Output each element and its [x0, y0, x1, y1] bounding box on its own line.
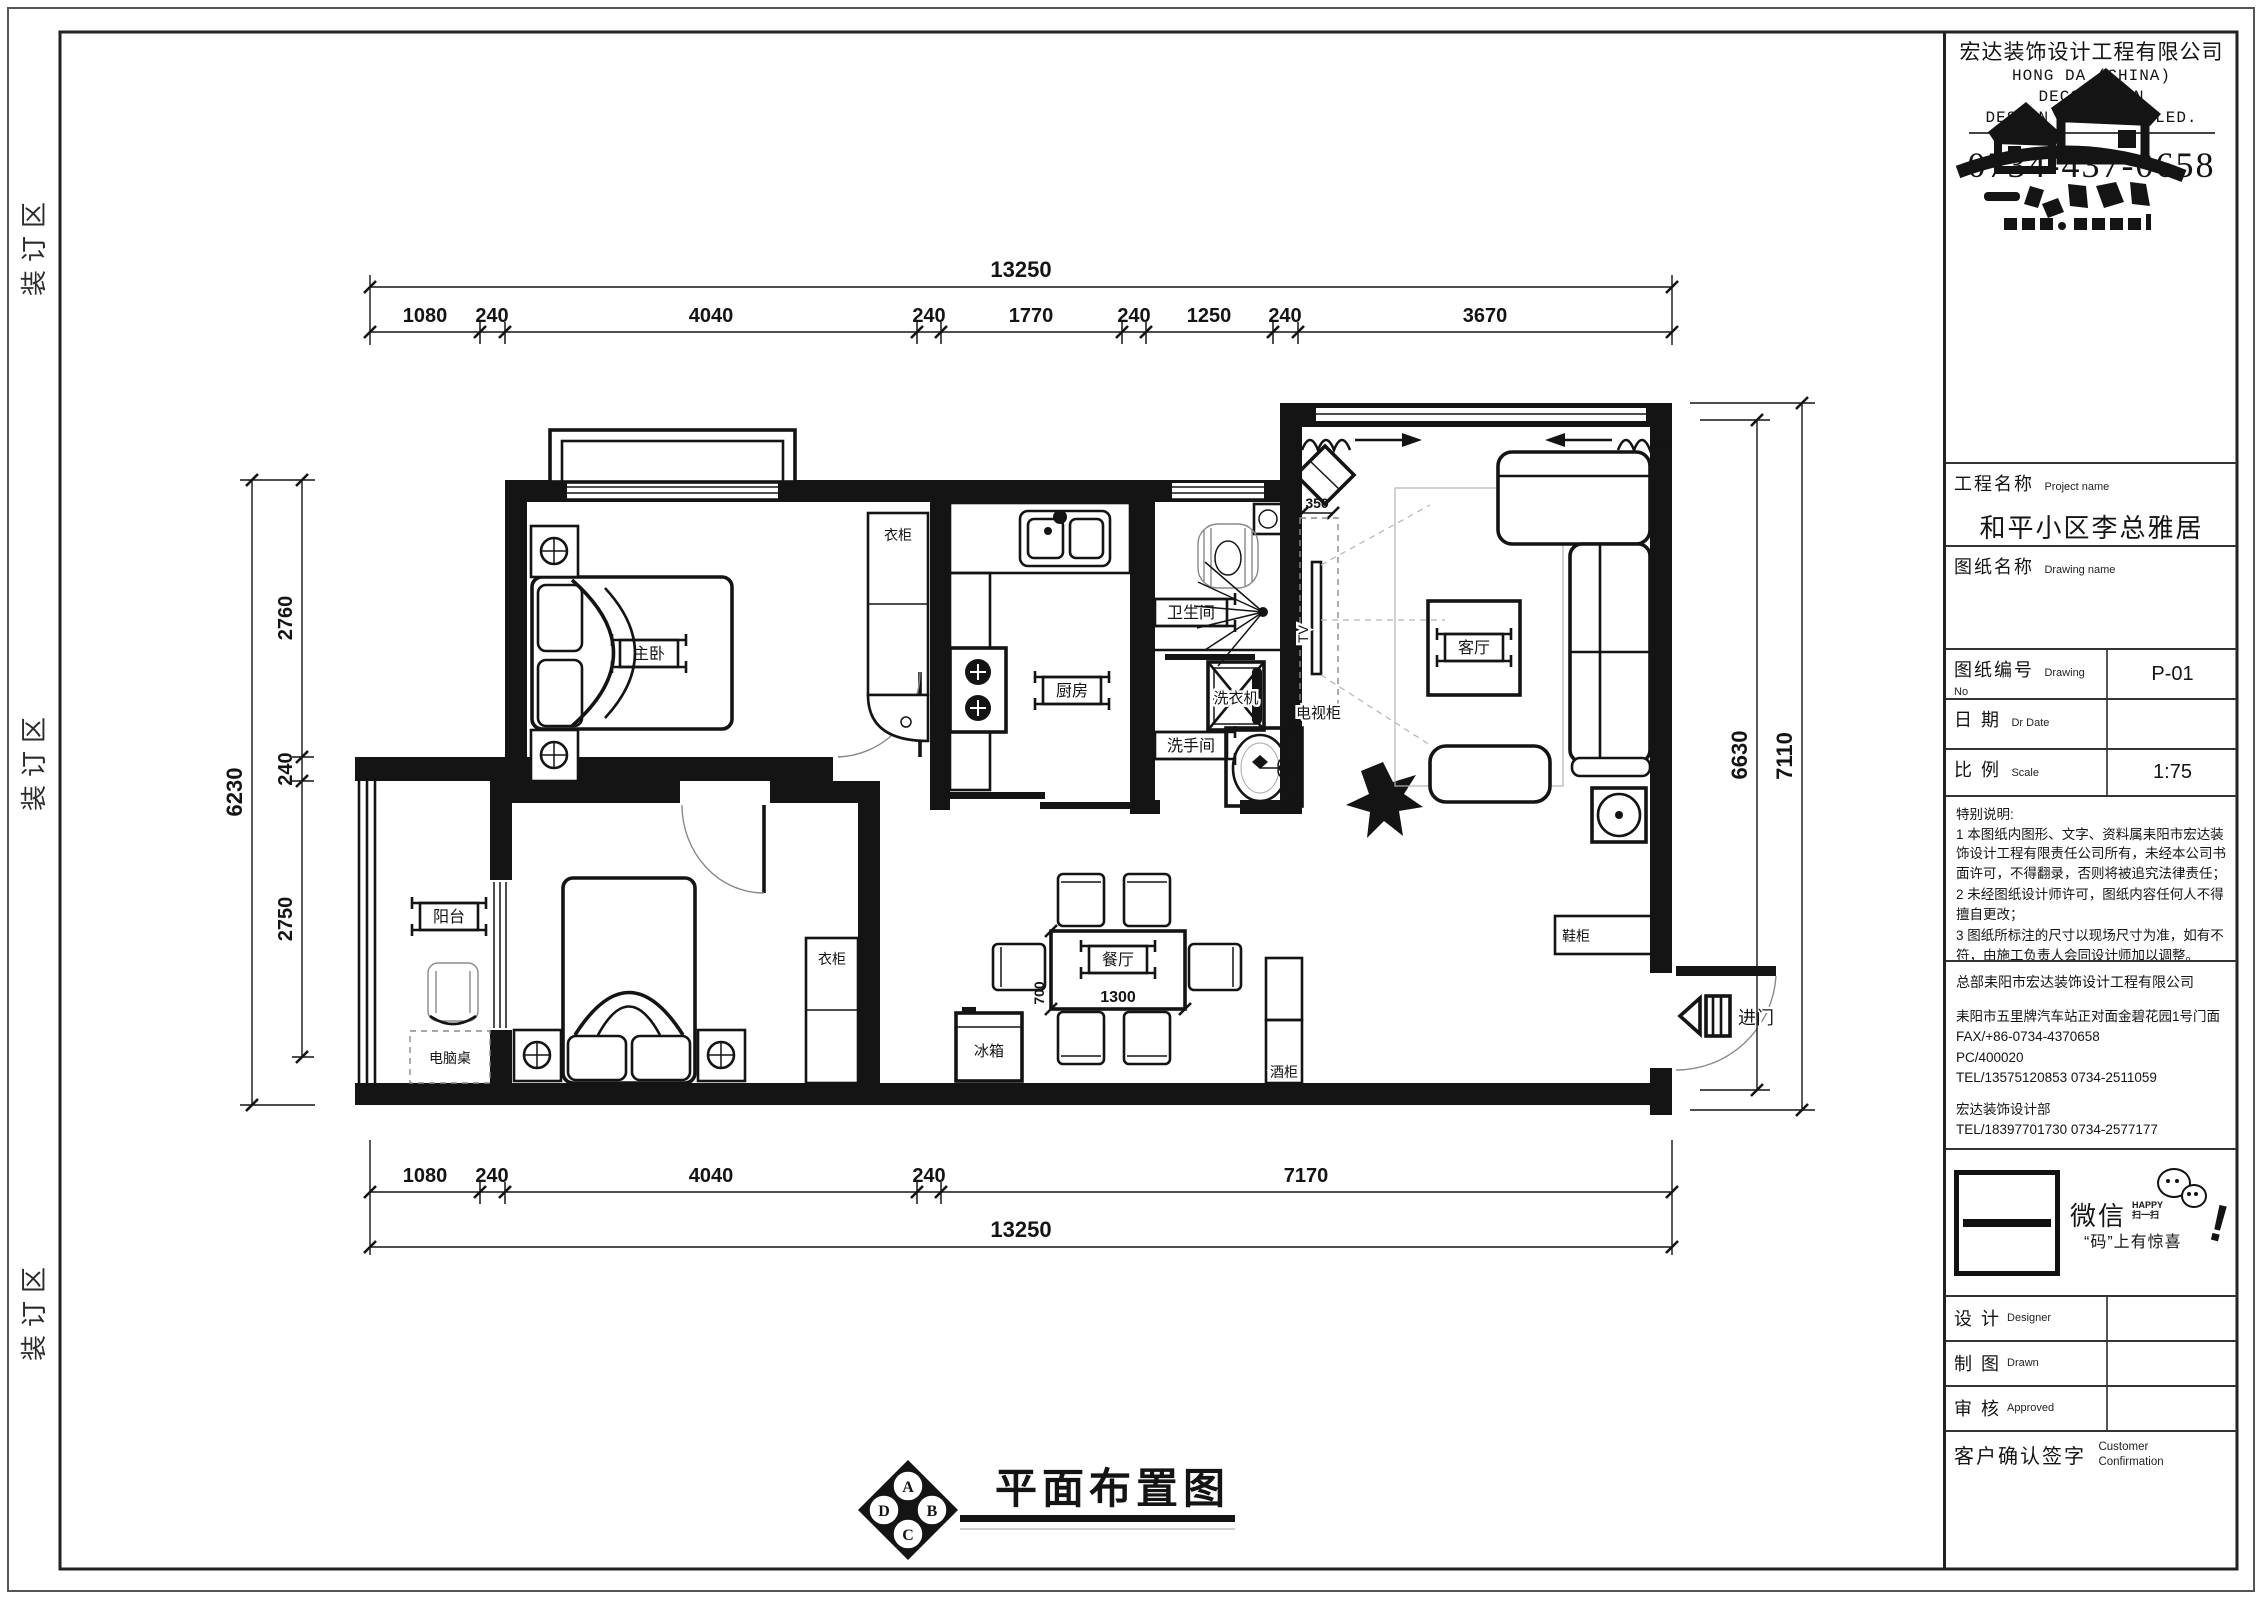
kitchen: 厨房 — [950, 503, 1130, 790]
dim-1300: 1300 — [1100, 989, 1136, 1006]
svg-text:A: A — [902, 1479, 914, 1496]
svg-text:洗手间: 洗手间 — [1167, 737, 1215, 755]
svg-text:2760: 2760 — [275, 596, 297, 641]
binding-area-label: 装订区 — [14, 680, 54, 840]
svg-text:C: C — [902, 1527, 914, 1544]
wechat-block: 微信 HAPPY扫一扫 “码”上有惊喜 ! — [1946, 1148, 2237, 1295]
title-block: 宏达装饰设计工程有限公司 HONG DA (CHINA) DECORATION … — [1943, 32, 2237, 1569]
svg-text:4040: 4040 — [689, 1165, 734, 1187]
dining: 餐厅 700 1300 冰箱 酒柜 — [956, 874, 1302, 1083]
svg-text:240: 240 — [912, 305, 945, 327]
svg-text:卫生间: 卫生间 — [1167, 604, 1215, 622]
drawn-row: 制 图 Drawn — [1946, 1340, 2237, 1385]
dim-700: 700 — [1031, 981, 1047, 1005]
room-label-bathroom: 卫生间 — [1147, 593, 1235, 632]
svg-text:厨房: 厨房 — [1056, 682, 1088, 700]
svg-text:240: 240 — [912, 1165, 945, 1187]
svg-text:餐厅: 餐厅 — [1102, 951, 1134, 969]
wine-cabinet-label: 酒柜 — [1270, 1064, 1298, 1080]
address-block: 总部耒阳市宏达装饰设计工程有限公司 耒阳市五里牌汽车站正对面金碧花园1号门面 F… — [1946, 960, 2237, 1148]
shoe-cabinet-label: 鞋柜 — [1562, 928, 1590, 944]
washer-label: 洗衣机 — [1213, 690, 1258, 707]
svg-text:13250: 13250 — [990, 1217, 1051, 1242]
bathroom: 卫生间 洗衣机 洗手间 — [1147, 504, 1302, 809]
svg-text:B: B — [927, 1503, 938, 1520]
room-label-dining: 餐厅 — [1081, 940, 1155, 979]
scale-value: 1:75 — [2106, 750, 2237, 795]
company-logo — [1946, 46, 2196, 246]
plan-title: 平面布置图 — [960, 1465, 1235, 1529]
project-name-row: 工程名称 Project name 和平小区李总雅居 — [1946, 462, 2237, 545]
drawn-signature-cell — [2106, 1342, 2237, 1385]
entry-label: 进门 — [1738, 1008, 1774, 1028]
svg-text:1250: 1250 — [1187, 305, 1232, 327]
approved-row: 审 核 Approved — [1946, 1385, 2237, 1430]
drawing-no-value: P-01 — [2106, 650, 2237, 698]
fridge-label: 冰箱 — [974, 1043, 1004, 1060]
plant — [1346, 762, 1423, 838]
svg-text:平面布置图: 平面布置图 — [995, 1465, 1230, 1512]
svg-text:240: 240 — [475, 305, 508, 327]
room-label-kitchen: 厨房 — [1035, 671, 1109, 710]
svg-text:1770: 1770 — [1009, 305, 1054, 327]
room-label-balcony: 阳台 — [412, 897, 486, 936]
customer-confirmation-row: 客户确认签字 Customer Confirmation — [1946, 1430, 2237, 1569]
binding-area-label: 装订区 — [14, 1230, 54, 1390]
svg-text:240: 240 — [475, 1165, 508, 1187]
svg-text:2750: 2750 — [275, 897, 297, 942]
svg-text:240: 240 — [1268, 305, 1301, 327]
wine-cabinet — [1266, 958, 1302, 1020]
svg-text:13250: 13250 — [990, 257, 1051, 282]
sofa-top — [1498, 452, 1650, 544]
tv-cabinet-label: 电视柜 — [1296, 705, 1341, 722]
entry-arrow-icon — [1680, 998, 1700, 1034]
compass: A B C D — [858, 1460, 958, 1560]
svg-text:阳台: 阳台 — [433, 908, 465, 926]
desk-label: 电脑桌 — [429, 1050, 471, 1066]
svg-text:D: D — [878, 1503, 890, 1520]
binding-area-label: 装订区 — [14, 165, 54, 325]
bedroom2: 衣柜 — [514, 878, 858, 1083]
designer-signature-cell — [2106, 1297, 2237, 1340]
company-header: 宏达装饰设计工程有限公司 HONG DA (CHINA) DECORATION … — [1946, 32, 2237, 462]
designer-row: 设 计 Designer — [1946, 1295, 2237, 1340]
project-name-value: 和平小区李总雅居 — [1946, 508, 2237, 545]
living-room: 350 TV 电视柜 客厅 — [1295, 433, 1666, 842]
qr-code — [1954, 1170, 2060, 1276]
master-bedroom: 主卧 衣柜 — [531, 513, 928, 781]
svg-text:7170: 7170 — [1284, 1165, 1329, 1187]
brand-calligraphy — [1984, 182, 2150, 218]
svg-text:6230: 6230 — [222, 768, 247, 817]
tv-label: TV — [1295, 624, 1311, 643]
svg-text:1080: 1080 — [403, 305, 448, 327]
date-row: 日 期 Dr Date — [1946, 698, 2237, 748]
balcony: 阳台 电脑桌 — [410, 897, 490, 1083]
wardrobe2-label: 衣柜 — [818, 951, 846, 967]
drawing-sheet: 主卧 衣柜 厨房 卫生间 洗衣机 洗手间 — [0, 0, 2262, 1599]
svg-text:4040: 4040 — [689, 305, 734, 327]
dim-350: 350 — [1305, 495, 1329, 511]
svg-text:客厅: 客厅 — [1458, 639, 1490, 657]
room-label-living: 客厅 — [1437, 628, 1511, 667]
special-notes: 特别说明: 1 本图纸内图形、文字、资料属耒阳市宏达装饰设计工程有限责任公司所有… — [1946, 795, 2237, 960]
wardrobe-label: 衣柜 — [884, 527, 912, 543]
date-value — [2106, 700, 2237, 748]
drawing-name-row: 图纸名称 Drawing name — [1946, 545, 2237, 648]
svg-text:1080: 1080 — [403, 1165, 448, 1187]
floor-plan-canvas: 主卧 衣柜 厨房 卫生间 洗衣机 洗手间 — [0, 0, 2262, 1599]
approved-signature-cell — [2106, 1387, 2237, 1430]
drawing-no-row: 图纸编号 Drawing No P-01 — [1946, 648, 2237, 698]
brand-slogan-marks — [2004, 214, 2151, 230]
svg-text:7110: 7110 — [1772, 732, 1797, 780]
svg-text:主卧: 主卧 — [633, 645, 665, 663]
scale-row: 比 例 Scale 1:75 — [1946, 748, 2237, 795]
bench — [1430, 746, 1550, 802]
svg-text:3670: 3670 — [1463, 305, 1508, 327]
svg-text:240: 240 — [275, 752, 297, 785]
svg-text:240: 240 — [1117, 305, 1150, 327]
svg-text:6630: 6630 — [1727, 731, 1752, 780]
room-label-washroom: 洗手间 — [1147, 726, 1235, 765]
bedroom2-door-arc — [682, 805, 764, 893]
